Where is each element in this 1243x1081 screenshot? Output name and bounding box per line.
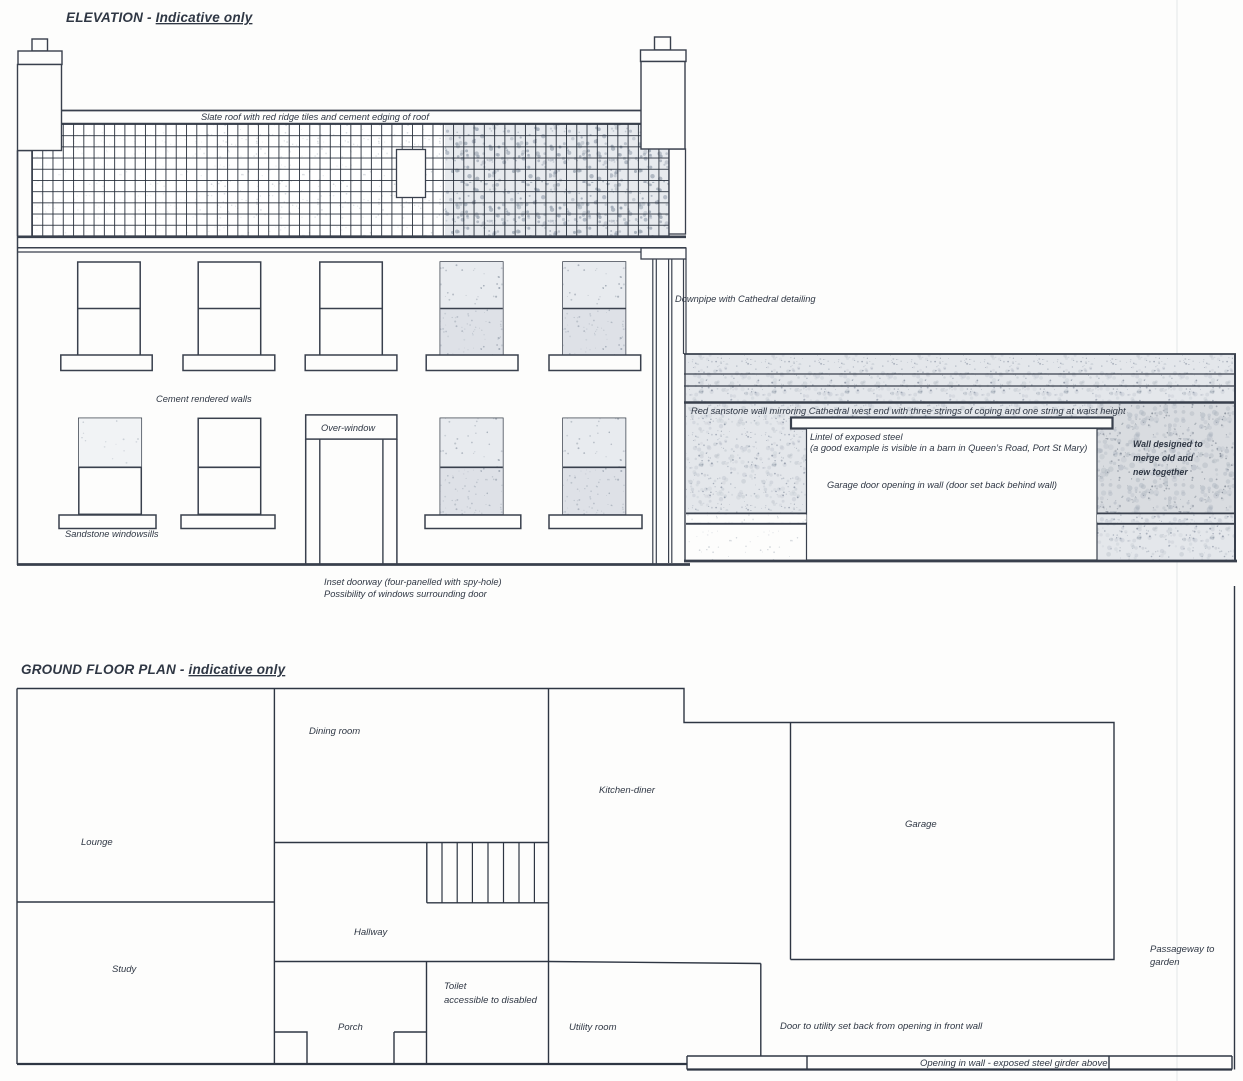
svg-text:ELEVATION - Indicative only: ELEVATION - Indicative only bbox=[66, 10, 254, 25]
svg-text:Cement rendered walls: Cement rendered walls bbox=[156, 394, 252, 404]
svg-text:Slate roof with red ridge tile: Slate roof with red ridge tiles and ceme… bbox=[201, 112, 430, 122]
svg-text:garden: garden bbox=[1150, 957, 1180, 968]
svg-text:Utility room: Utility room bbox=[569, 1022, 617, 1033]
svg-text:Toilet: Toilet bbox=[444, 981, 467, 992]
svg-text:Opening in wall - exposed stee: Opening in wall - exposed steel girder a… bbox=[920, 1058, 1107, 1069]
svg-text:Door to utility set back from: Door to utility set back from opening in… bbox=[780, 1021, 983, 1032]
svg-text:new together: new together bbox=[1133, 467, 1188, 477]
svg-text:Over-window: Over-window bbox=[321, 423, 376, 433]
svg-text:Red sanstone wall mirroring Ca: Red sanstone wall mirroring Cathedral we… bbox=[691, 406, 1126, 416]
svg-text:Garage door opening in wall (d: Garage door opening in wall (door set ba… bbox=[827, 480, 1057, 490]
svg-text:Possibility of windows surroun: Possibility of windows surrounding door bbox=[324, 589, 488, 599]
svg-text:Garage: Garage bbox=[905, 819, 937, 830]
svg-text:Wall designed to: Wall designed to bbox=[1133, 439, 1203, 449]
svg-text:Lounge: Lounge bbox=[81, 837, 113, 848]
svg-text:Dining room: Dining room bbox=[309, 726, 360, 737]
svg-text:(a good example is visible in: (a good example is visible in a barn in … bbox=[810, 443, 1087, 453]
svg-text:Inset doorway (four-panelled w: Inset doorway (four-panelled with spy-ho… bbox=[324, 577, 502, 587]
svg-text:Lintel of exposed steel: Lintel of exposed steel bbox=[810, 432, 903, 442]
svg-text:Sandstone windowsills: Sandstone windowsills bbox=[65, 529, 159, 539]
svg-text:Kitchen-diner: Kitchen-diner bbox=[599, 785, 656, 796]
svg-text:Study: Study bbox=[112, 964, 138, 975]
svg-text:Porch: Porch bbox=[338, 1022, 363, 1033]
svg-text:accessible to disabled: accessible to disabled bbox=[444, 995, 538, 1006]
svg-text:Passageway to: Passageway to bbox=[1150, 944, 1214, 955]
svg-text:GROUND FLOOR PLAN - indicative: GROUND FLOOR PLAN - indicative only bbox=[21, 662, 287, 677]
svg-text:Downpipe with Cathedral detail: Downpipe with Cathedral detailing bbox=[675, 294, 816, 304]
svg-text:merge old and: merge old and bbox=[1133, 453, 1194, 463]
svg-text:Hallway: Hallway bbox=[354, 927, 389, 938]
